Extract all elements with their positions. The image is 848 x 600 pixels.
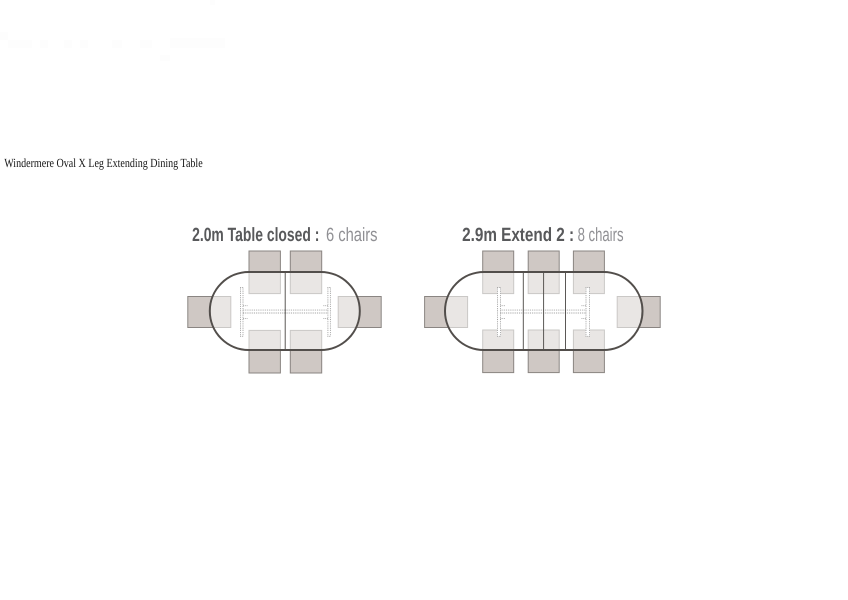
svg-text:Windermere Oval X Leg Extendin: Windermere Oval X Leg Extending Dining T… — [4, 156, 203, 170]
svg-text:8 chairs: 8 chairs — [578, 225, 624, 246]
svg-text:2.0m Table closed :: 2.0m Table closed : — [192, 225, 319, 246]
svg-text:6 chairs: 6 chairs — [326, 225, 378, 246]
svg-text:2.9m Extend 2 :: 2.9m Extend 2 : — [462, 225, 574, 246]
